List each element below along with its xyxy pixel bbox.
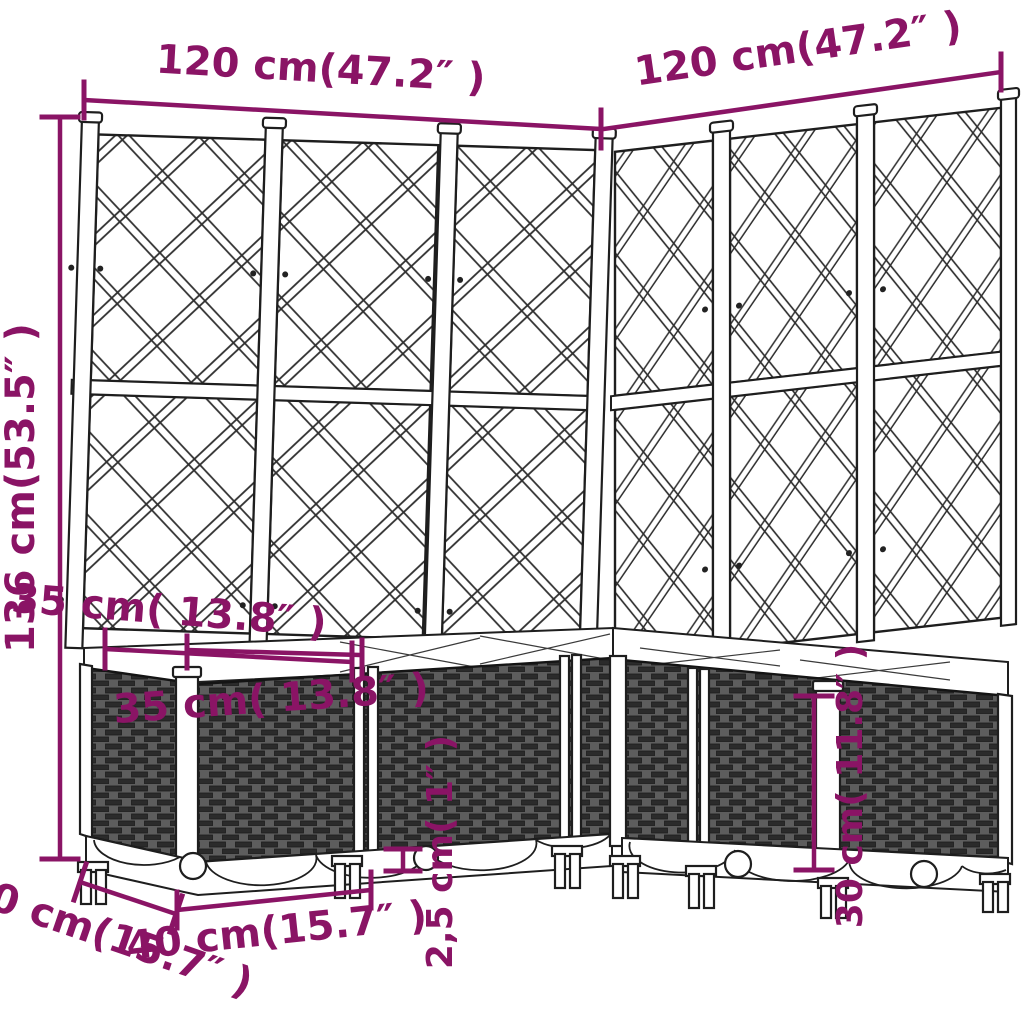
post-cap — [438, 123, 461, 134]
trellis-post — [713, 129, 730, 659]
planter-edge-trim — [998, 694, 1012, 864]
trellis-post — [1001, 96, 1016, 626]
trellis-post — [857, 112, 874, 642]
trellis-panel — [874, 108, 1001, 366]
planter-trellis-drawing: 120 cm(47.2″ ) 120 cm(47.2″ ) 136 cm(53.… — [0, 0, 1024, 1024]
base-circle — [725, 851, 751, 877]
trellis-panel — [615, 399, 713, 662]
trellis-panel — [91, 134, 266, 385]
trellis-panel — [275, 140, 439, 391]
dim-label-box-height: 30 cm( 11.8″ ) — [830, 644, 871, 928]
trellis-right-wall — [611, 88, 1019, 670]
trellis-left-wall — [56, 112, 616, 665]
planter-corner-post — [610, 656, 626, 846]
base-circle — [911, 861, 937, 887]
planter-corner-trim — [80, 664, 92, 838]
trellis-panel — [730, 382, 857, 648]
post-cap — [263, 118, 286, 129]
dim-label-foot-height: 2,5 cm( 1″ ) — [420, 735, 461, 969]
trellis-panel — [874, 366, 1001, 632]
trellis-panel — [615, 141, 713, 396]
trellis-panel — [450, 146, 596, 396]
trellis-panel — [730, 124, 857, 382]
post-cap — [710, 120, 733, 133]
trellis-panel — [442, 406, 587, 644]
base-circle — [180, 853, 206, 879]
post-cap — [854, 104, 877, 117]
dimension-diagram: 120 cm(47.2″ ) 120 cm(47.2″ ) 136 cm(53.… — [0, 0, 1024, 1024]
